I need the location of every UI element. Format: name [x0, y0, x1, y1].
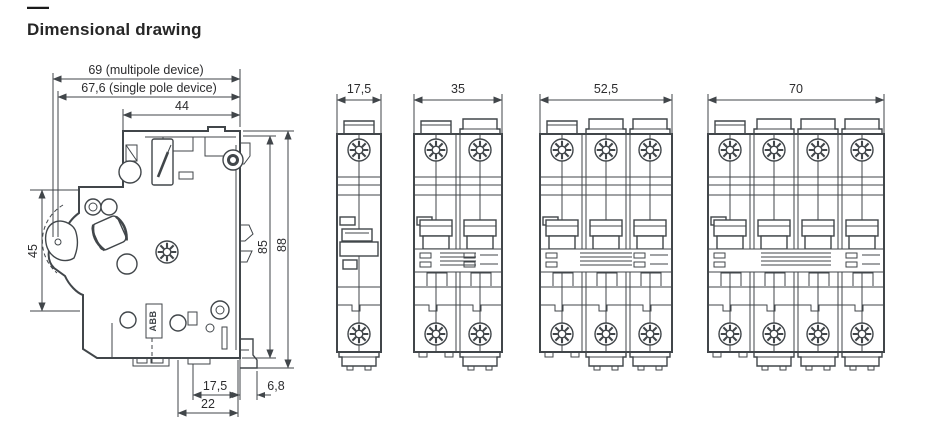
brand-text: ABB	[711, 188, 725, 195]
handle-tie-bar	[708, 249, 884, 272]
rivet	[170, 315, 186, 331]
width-dimension: 70	[708, 82, 884, 134]
toggle-knob	[90, 213, 130, 251]
dim-label: 6,8	[267, 379, 284, 393]
hole	[119, 161, 141, 183]
slot	[222, 327, 227, 349]
dim-label: 45	[26, 244, 40, 258]
bottom-terminal-cap	[339, 352, 379, 370]
housing-brand-label: ABB	[146, 304, 162, 338]
brand-text: ABB	[417, 188, 431, 195]
arrowhead	[257, 392, 265, 398]
section-dash: —	[27, 0, 202, 14]
dim-label: 52,5	[594, 82, 618, 96]
internal-details	[85, 137, 243, 366]
front-view-3-pole: 52,5 ABB	[532, 80, 680, 376]
din-rail-clip	[240, 143, 257, 368]
dim-label: 35	[451, 82, 465, 96]
housing-brand-text: ABB	[148, 311, 158, 332]
handle-tie-bar	[414, 249, 502, 272]
top-terminal-cap	[344, 121, 374, 134]
front-view-4-pole: 70 ABB	[700, 80, 892, 376]
rivet	[211, 301, 229, 319]
dim-label: 88	[275, 238, 289, 252]
dimensional-drawing-page: — Dimensional drawing	[0, 0, 938, 445]
dim-label: 22	[201, 397, 215, 411]
dim-body-height: 85	[242, 136, 276, 358]
dim-label: 85	[256, 240, 270, 254]
front-view-1-pole: 17,5 ABB	[329, 80, 389, 376]
terminal-screw	[223, 150, 243, 170]
dim-label: 69 (multipole device)	[88, 63, 203, 77]
handle-tie-bar	[540, 249, 672, 272]
side-view: ABB 69 (multipole device) 67,6 (single p…	[25, 55, 325, 445]
breaker-body: ABB	[540, 119, 672, 370]
brand-text: ABB	[543, 188, 557, 195]
breaker-body: ABB	[337, 121, 381, 370]
breaker-body: ABB	[708, 119, 884, 370]
torque-panel	[152, 139, 173, 185]
page-header: — Dimensional drawing	[27, 0, 202, 40]
pole-separator	[456, 134, 460, 352]
width-dimension: 52,5	[540, 82, 672, 134]
screw-head-icon	[156, 241, 178, 263]
dim-label: 67,6 (single pole device)	[81, 81, 217, 95]
arrowhead	[232, 392, 240, 398]
width-dimension: 35	[414, 82, 502, 134]
rivet	[85, 199, 101, 215]
breaker-body: ABB	[414, 119, 502, 370]
dim-label: 17,5	[203, 379, 227, 393]
brand-text: ABB	[340, 188, 354, 195]
dim-label: 44	[175, 99, 189, 113]
abb-red-band	[708, 185, 884, 195]
front-view-2-pole: 35 ABB	[406, 80, 510, 376]
rivet	[120, 312, 136, 328]
dim-singlepole-width: 67,6 (single pole device)	[58, 81, 240, 97]
dim-bottom: 17,5 6,8 22	[178, 358, 285, 417]
dim-label: 70	[789, 82, 803, 96]
page-title: Dimensional drawing	[27, 20, 202, 40]
hole	[117, 254, 137, 274]
dim-label: 17,5	[347, 82, 371, 96]
rivet	[101, 199, 117, 215]
